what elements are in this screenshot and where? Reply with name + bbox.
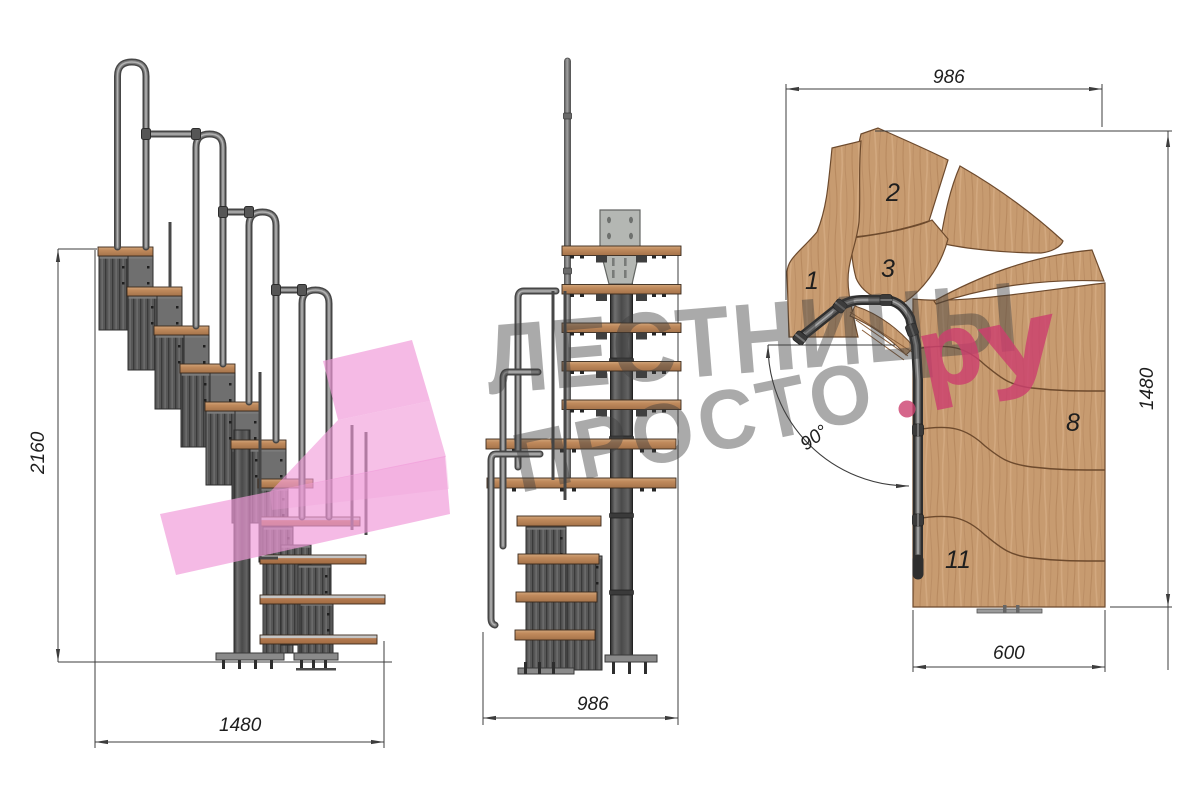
svg-text:11: 11 [945,546,971,574]
svg-text:2: 2 [885,179,900,207]
svg-text:986: 986 [933,67,965,88]
svg-text:1480: 1480 [219,715,262,736]
svg-text:8: 8 [1066,409,1080,437]
svg-text:1480: 1480 [1137,367,1158,410]
svg-text:2160: 2160 [28,431,49,475]
svg-text:986: 986 [577,694,609,715]
svg-text:600: 600 [993,643,1025,664]
